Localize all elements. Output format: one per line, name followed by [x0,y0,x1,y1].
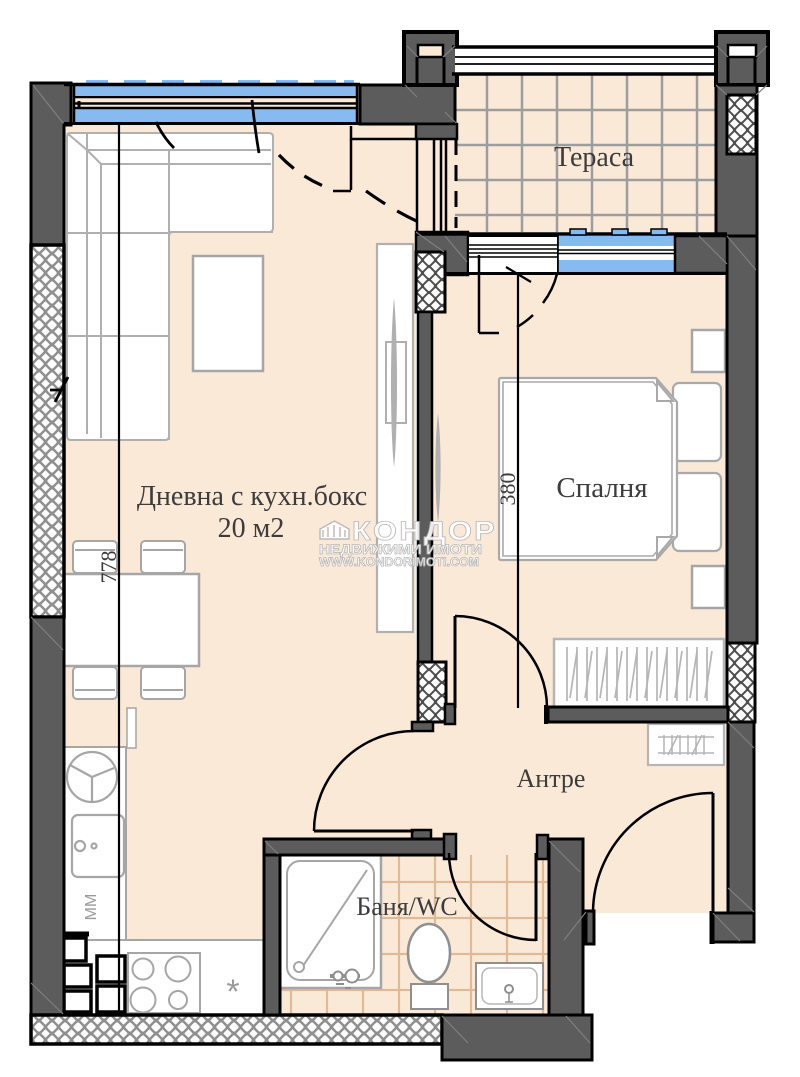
svg-text:778: 778 [96,551,121,584]
svg-text:Спалня: Спалня [556,472,647,504]
svg-text:Тераса: Тераса [554,142,635,173]
svg-text:380: 380 [495,473,520,506]
svg-text:Антре: Антре [517,764,586,793]
svg-text:WWW.KONDORIMOTI.COM: WWW.KONDORIMOTI.COM [319,555,479,569]
svg-text:ММ: ММ [83,894,100,921]
svg-text:Дневна с кухн.бокс: Дневна с кухн.бокс [137,481,367,512]
svg-text:20 м2: 20 м2 [218,513,285,544]
svg-text:Баня/WC: Баня/WC [356,892,457,921]
svg-text:*: * [226,973,239,1011]
